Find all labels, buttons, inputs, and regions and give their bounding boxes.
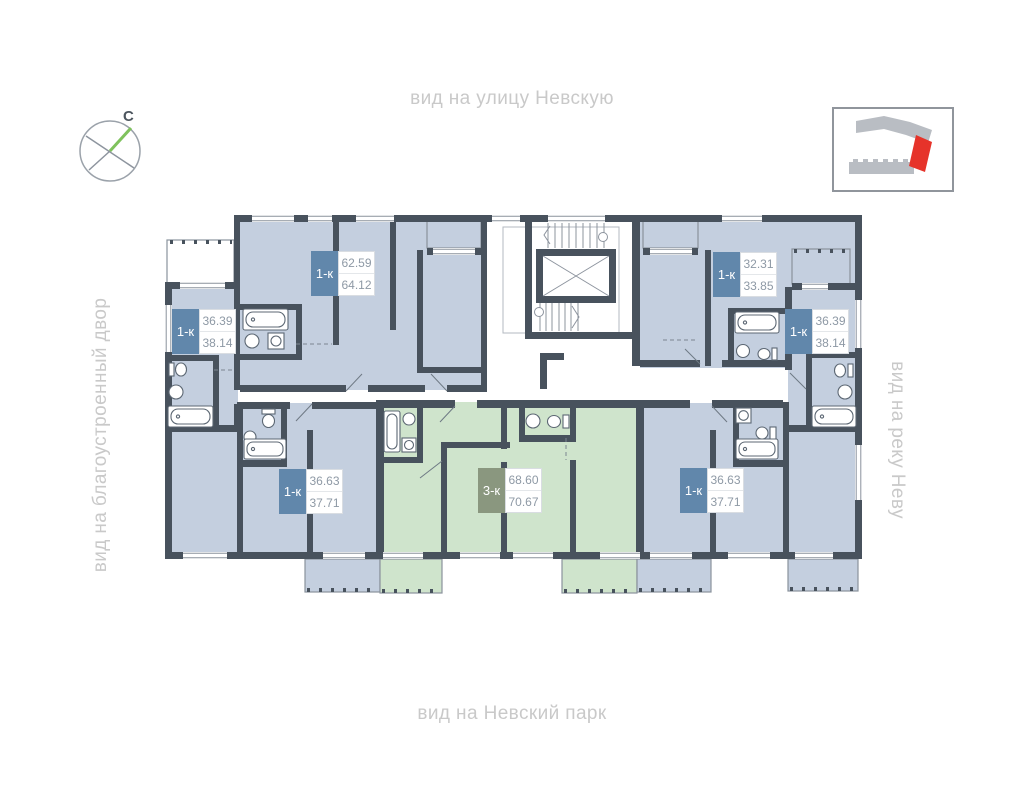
sink-icon — [838, 385, 852, 399]
area-living: 36.63 — [708, 469, 743, 491]
apartment-region-bottom-right-bedroom[interactable] — [786, 430, 858, 554]
apartment-type-badge: 1-к — [713, 252, 740, 297]
bathtub-icon — [735, 312, 779, 333]
view-label-left: вид на благоустроенный двор — [90, 298, 112, 573]
toilet-icon — [169, 363, 187, 376]
apartment-card-bottom-left[interactable]: 1-к 36.63 37.71 — [279, 469, 343, 514]
area-total: 33.85 — [741, 275, 776, 296]
area-living: 36.63 — [307, 470, 342, 492]
area-living: 36.39 — [813, 310, 848, 332]
compass-north-label: С — [123, 108, 134, 125]
location-minimap — [833, 108, 953, 191]
washer-icon — [736, 408, 751, 423]
view-label-right: вид на реку Неву — [886, 361, 908, 519]
apartment-type-badge: 1-к — [785, 309, 812, 354]
apartment-region-bottom-left-bedroom[interactable] — [168, 430, 240, 555]
minimap-building-bottom-wing — [849, 162, 914, 174]
compass-icon — [80, 121, 140, 181]
apartment-type-badge: 1-к — [279, 469, 306, 514]
apartment-areas: 36.39 38.14 — [812, 309, 849, 354]
apartment-areas: 36.63 37.71 — [306, 469, 343, 514]
apartment-areas: 68.60 70.67 — [505, 468, 542, 513]
washer-icon — [268, 333, 284, 349]
sink-icon — [245, 334, 259, 348]
bathtub-icon — [812, 406, 856, 427]
elevator — [543, 256, 609, 296]
apartment-card-bottom-middle[interactable]: 3-к 68.60 70.67 — [478, 468, 542, 513]
bathtub-icon — [384, 411, 400, 452]
toilet-icon — [758, 348, 777, 360]
compass-north-needle — [110, 128, 131, 151]
area-living: 62.59 — [339, 252, 374, 274]
stairs-lower-flight — [535, 303, 580, 331]
bathtub-icon — [168, 406, 213, 427]
area-total: 38.14 — [200, 332, 235, 353]
area-total: 37.71 — [708, 491, 743, 512]
balcony-top-left — [167, 240, 234, 283]
toilet-icon — [262, 409, 275, 428]
washer-icon — [402, 438, 416, 452]
balcony-top-right — [792, 249, 850, 284]
floor-plan — [0, 0, 1024, 811]
area-total: 37.71 — [307, 492, 342, 513]
apartment-card-left[interactable]: 1-к 36.39 38.14 — [172, 309, 236, 354]
balcony-bottom-4 — [637, 559, 711, 592]
area-total: 64.12 — [339, 274, 374, 295]
view-label-bottom: вид на Невский парк — [0, 703, 1024, 725]
balcony-bottom-2 — [380, 559, 442, 593]
apartment-type-badge: 3-к — [478, 468, 505, 513]
apartment-type-badge: 1-к — [172, 309, 199, 354]
bathtub-icon — [736, 439, 778, 459]
area-total: 38.14 — [813, 332, 848, 353]
apartment-card-top-right[interactable]: 1-к 32.31 33.85 — [713, 252, 777, 297]
area-living: 36.39 — [200, 310, 235, 332]
toilet-icon — [548, 415, 570, 428]
sink-icon — [403, 413, 415, 425]
sink-icon — [737, 345, 750, 358]
apartment-card-top-left[interactable]: 1-к 62.59 64.12 — [311, 251, 375, 296]
apartment-type-badge: 1-к — [311, 251, 338, 296]
toilet-icon — [756, 427, 776, 440]
bathtub-icon — [244, 439, 286, 459]
view-label-top: вид на улицу Невскую — [0, 88, 1024, 110]
sink-icon — [526, 414, 540, 428]
apartment-card-right[interactable]: 1-к 36.39 38.14 — [785, 309, 849, 354]
area-living: 32.31 — [741, 253, 776, 275]
balcony-bottom-1 — [305, 559, 380, 592]
apartment-areas: 32.31 33.85 — [740, 252, 777, 297]
apartment-areas: 62.59 64.12 — [338, 251, 375, 296]
bathtub-icon — [243, 309, 288, 330]
floorplan-page: вид на улицу Невскую вид на Невский парк… — [0, 0, 1024, 811]
area-living: 68.60 — [506, 469, 541, 491]
area-total: 70.67 — [506, 491, 541, 512]
balcony-niche-2 — [643, 218, 698, 248]
balcony-bottom-5 — [788, 559, 858, 591]
toilet-icon — [835, 364, 854, 377]
apartment-areas: 36.39 38.14 — [199, 309, 236, 354]
sink-icon — [169, 385, 183, 399]
balcony-bottom-3 — [562, 559, 637, 593]
apartment-card-bottom-right[interactable]: 1-к 36.63 37.71 — [680, 468, 744, 513]
apartment-type-badge: 1-к — [680, 468, 707, 513]
apartment-areas: 36.63 37.71 — [707, 468, 744, 513]
balcony-niche-1 — [427, 218, 481, 248]
